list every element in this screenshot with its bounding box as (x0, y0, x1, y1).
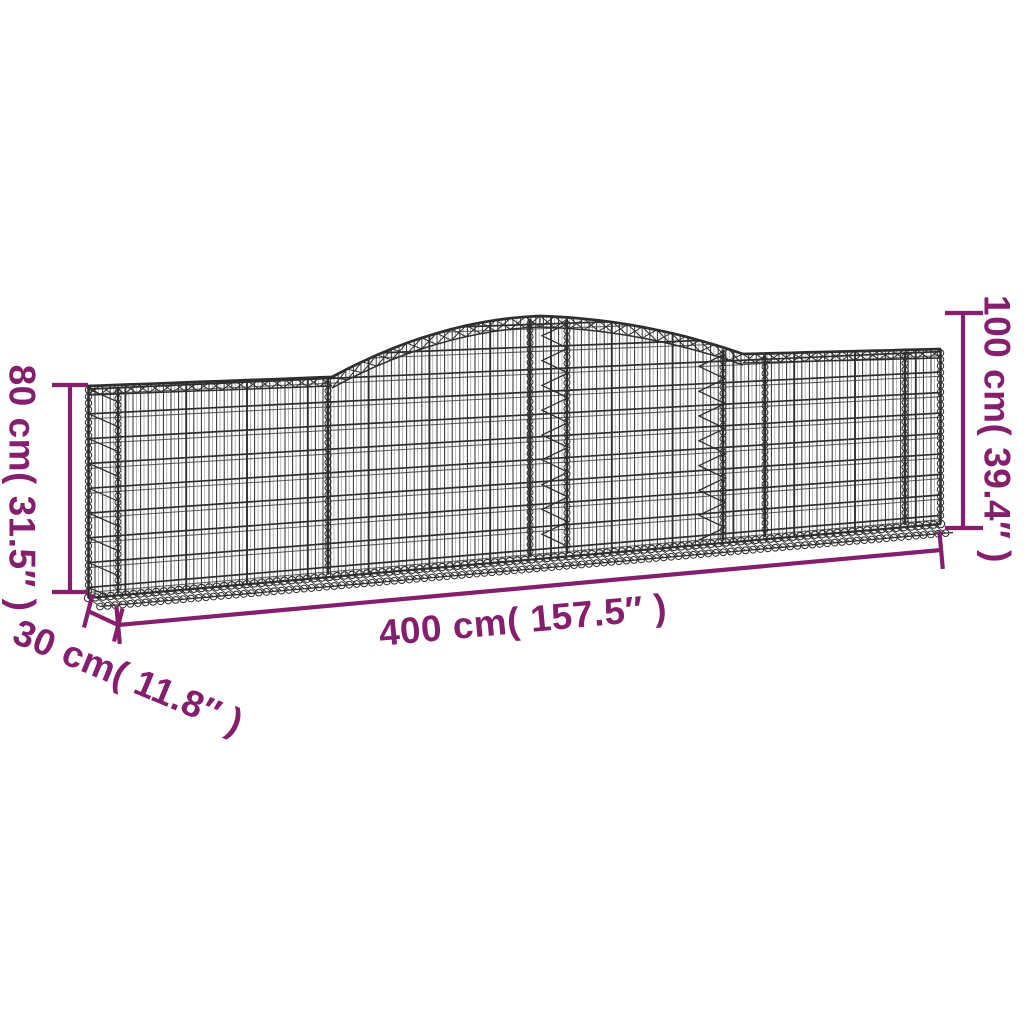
gabion-diagram-svg (0, 0, 1024, 1024)
height-left-dimension-line (52, 385, 88, 592)
diagram-stage: 80 cm( 31.5″ ) 100 cm( 39.4″ ) 400 cm( 1… (0, 0, 1024, 1024)
mesh-front-face (88, 300, 941, 615)
height-left-label: 80 cm( 31.5″ ) (2, 365, 41, 612)
height-right-label: 100 cm( 39.4″ ) (977, 295, 1016, 563)
